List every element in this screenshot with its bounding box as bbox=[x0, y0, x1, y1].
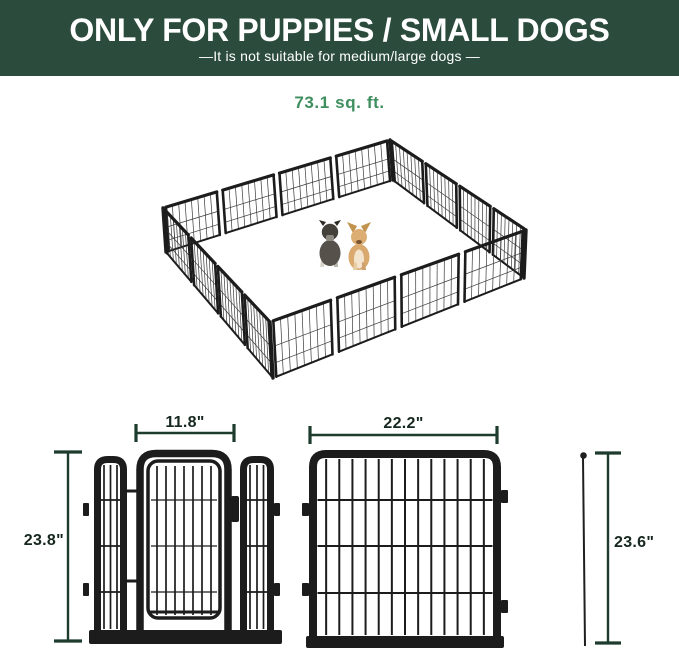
large-panel-width-label: 22.2" bbox=[310, 414, 497, 433]
gate-panel-height-label: 23.8" bbox=[6, 531, 64, 550]
dog1-body bbox=[320, 240, 341, 266]
gate-door-width-label: 11.8" bbox=[136, 413, 234, 432]
ground-stake-diagram bbox=[580, 452, 587, 646]
playpen-illustration bbox=[163, 140, 526, 378]
dog1-ear-right bbox=[334, 220, 341, 226]
dog-chihuahua-illustration bbox=[347, 222, 371, 270]
dog1-ear-left bbox=[319, 220, 326, 226]
product-artwork bbox=[0, 0, 679, 649]
dogs-illustration bbox=[319, 220, 371, 270]
dog2-muzzle bbox=[356, 240, 362, 244]
dog-schnauzer-puppy-illustration bbox=[319, 220, 341, 267]
dog1-muzzle bbox=[326, 235, 334, 241]
gate-panel-diagram bbox=[83, 454, 282, 645]
large-panel-diagram bbox=[302, 454, 508, 648]
ground-stake-height-label: 23.6" bbox=[614, 533, 674, 552]
